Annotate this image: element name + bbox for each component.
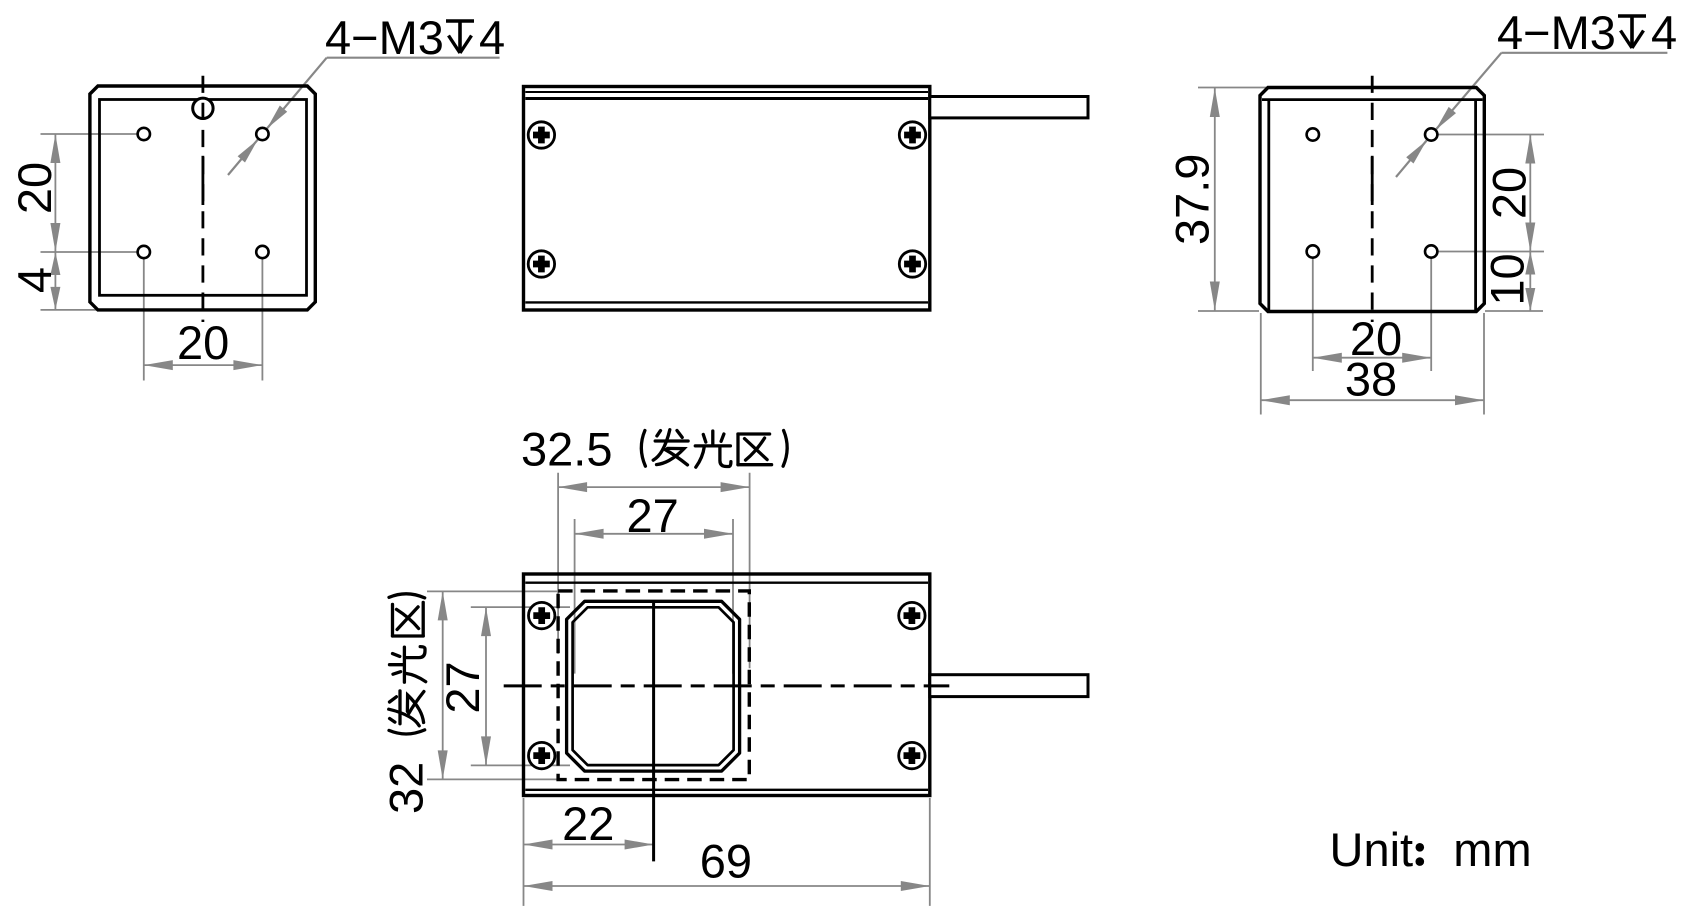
svg-text:22: 22 (562, 797, 614, 850)
svg-text:4: 4 (8, 267, 61, 293)
svg-text:32: 32 (380, 762, 433, 814)
svg-text:4−M3: 4−M3 (1497, 6, 1616, 59)
svg-text:4−M3: 4−M3 (325, 11, 444, 64)
svg-text:69: 69 (700, 835, 752, 888)
svg-text:38: 38 (1345, 353, 1397, 406)
svg-text:32.5: 32.5 (521, 423, 612, 476)
svg-text:mm: mm (1453, 823, 1531, 876)
svg-text:20: 20 (1483, 167, 1536, 219)
svg-text:4: 4 (1651, 6, 1677, 59)
svg-text:20: 20 (177, 316, 229, 369)
svg-text:Unit: Unit (1330, 823, 1414, 876)
svg-text:27: 27 (436, 661, 489, 713)
svg-text:10: 10 (1481, 253, 1534, 305)
svg-text:20: 20 (8, 162, 61, 214)
svg-text:37.9: 37.9 (1165, 154, 1218, 245)
svg-text:27: 27 (627, 489, 679, 542)
svg-text:4: 4 (479, 11, 505, 64)
